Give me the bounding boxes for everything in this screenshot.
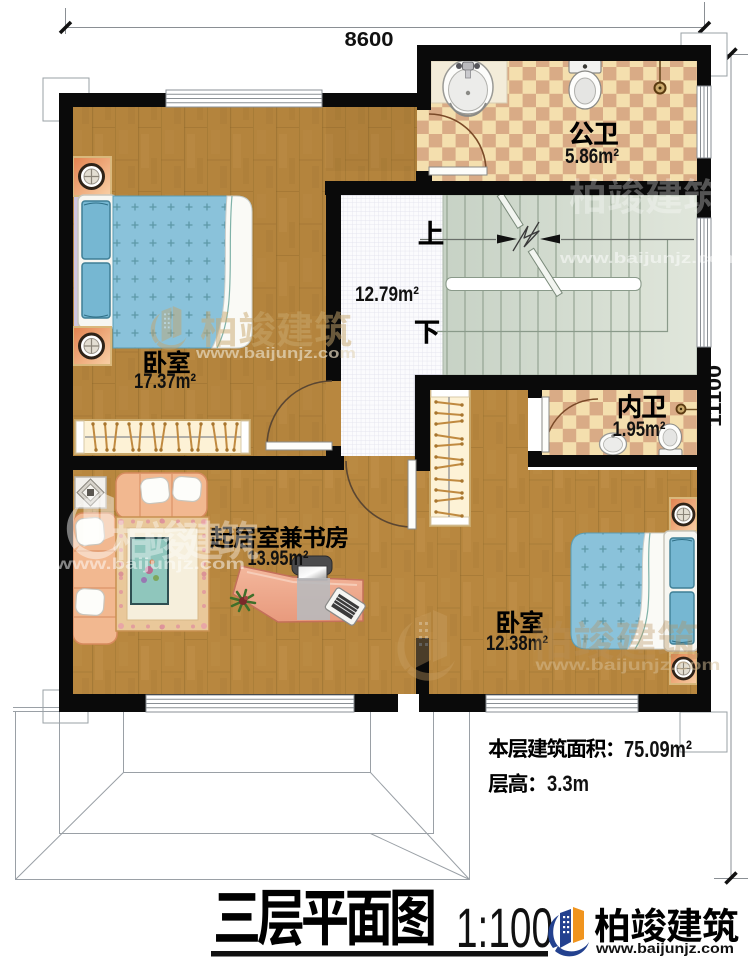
svg-text:www.baijunjz.com: www.baijunjz.com: [195, 345, 356, 362]
svg-text:75.09m²: 75.09m²: [624, 736, 692, 762]
svg-text:17.37m²: 17.37m²: [134, 370, 196, 393]
svg-text:1:100: 1:100: [456, 896, 553, 959]
svg-text:8600: 8600: [345, 29, 394, 51]
svg-text:www.baijunjz.com: www.baijunjz.com: [54, 556, 245, 573]
svg-text:www.baijunjz.com: www.baijunjz.com: [559, 250, 740, 267]
svg-text:www.baijunjz.com: www.baijunjz.com: [534, 657, 720, 674]
svg-text:www.baijunjz.com: www.baijunjz.com: [595, 940, 734, 956]
svg-text:1.95m²: 1.95m²: [613, 418, 666, 441]
svg-text:12.79m²: 12.79m²: [355, 283, 419, 306]
svg-text:3.3m: 3.3m: [547, 771, 589, 796]
svg-text:5.86m²: 5.86m²: [565, 145, 619, 168]
